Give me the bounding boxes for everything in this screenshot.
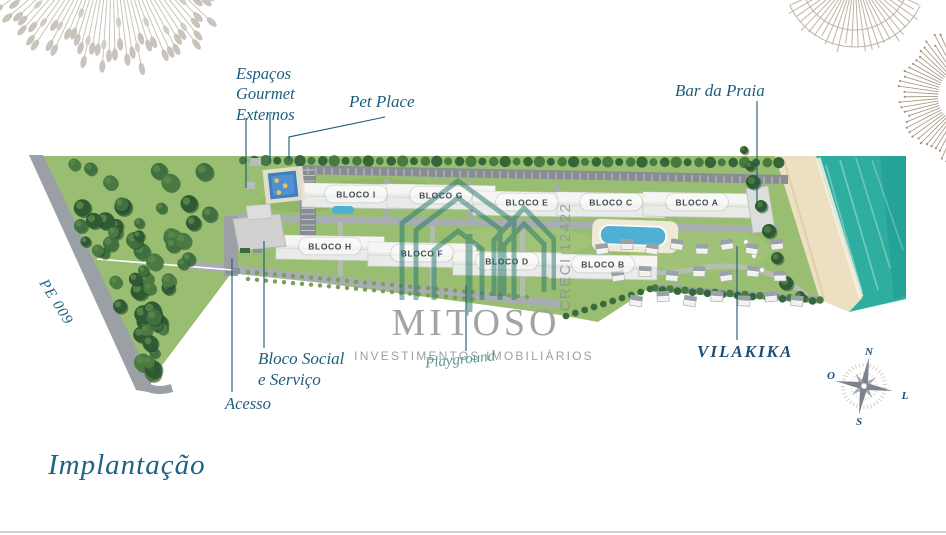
block-label-pill: BLOCO H bbox=[299, 238, 361, 255]
vilakika-label: VILAKIKA bbox=[697, 341, 793, 362]
compass-west-letter: O bbox=[827, 370, 835, 382]
site-plan-page: BLOCO I BLOCO G BLOCO E BLOCO C BLOCO A … bbox=[0, 0, 946, 535]
watermark-logo bbox=[390, 168, 556, 314]
acesso-label: Acesso bbox=[225, 394, 271, 414]
block-label-pill: BLOCO C bbox=[580, 194, 642, 211]
ray-burst-decoration bbox=[898, 27, 946, 163]
dandelion-decoration bbox=[0, 0, 250, 76]
page-title: Implantação bbox=[48, 449, 206, 482]
bottom-divider bbox=[0, 531, 946, 533]
pet-place-label: Pet Place bbox=[349, 91, 415, 112]
block-label-pill: BLOCO B bbox=[572, 256, 634, 273]
pavilion bbox=[246, 182, 255, 189]
espacos-gourmet-label: Espaços Gourmet Externos bbox=[236, 64, 295, 125]
watermark-creci-text: CRECI 12422 bbox=[557, 202, 573, 312]
compass-east-letter: L bbox=[902, 390, 909, 402]
block-label-pill: BLOCO A bbox=[666, 194, 728, 211]
road-curve bbox=[140, 382, 172, 390]
compass-rose bbox=[830, 352, 897, 419]
small-pool bbox=[332, 206, 354, 214]
pavilion bbox=[250, 158, 261, 166]
block-label-pill: BLOCO I bbox=[325, 186, 387, 203]
compass-north-letter: N bbox=[865, 346, 873, 358]
fan-shell-decoration bbox=[789, 0, 921, 52]
gourmet-pet-area bbox=[262, 166, 305, 204]
bar-da-praia-label: Bar da Praia bbox=[675, 80, 765, 101]
compass-south-letter: S bbox=[856, 416, 862, 428]
bloco-social-label: Bloco Social e Serviço bbox=[258, 348, 344, 390]
